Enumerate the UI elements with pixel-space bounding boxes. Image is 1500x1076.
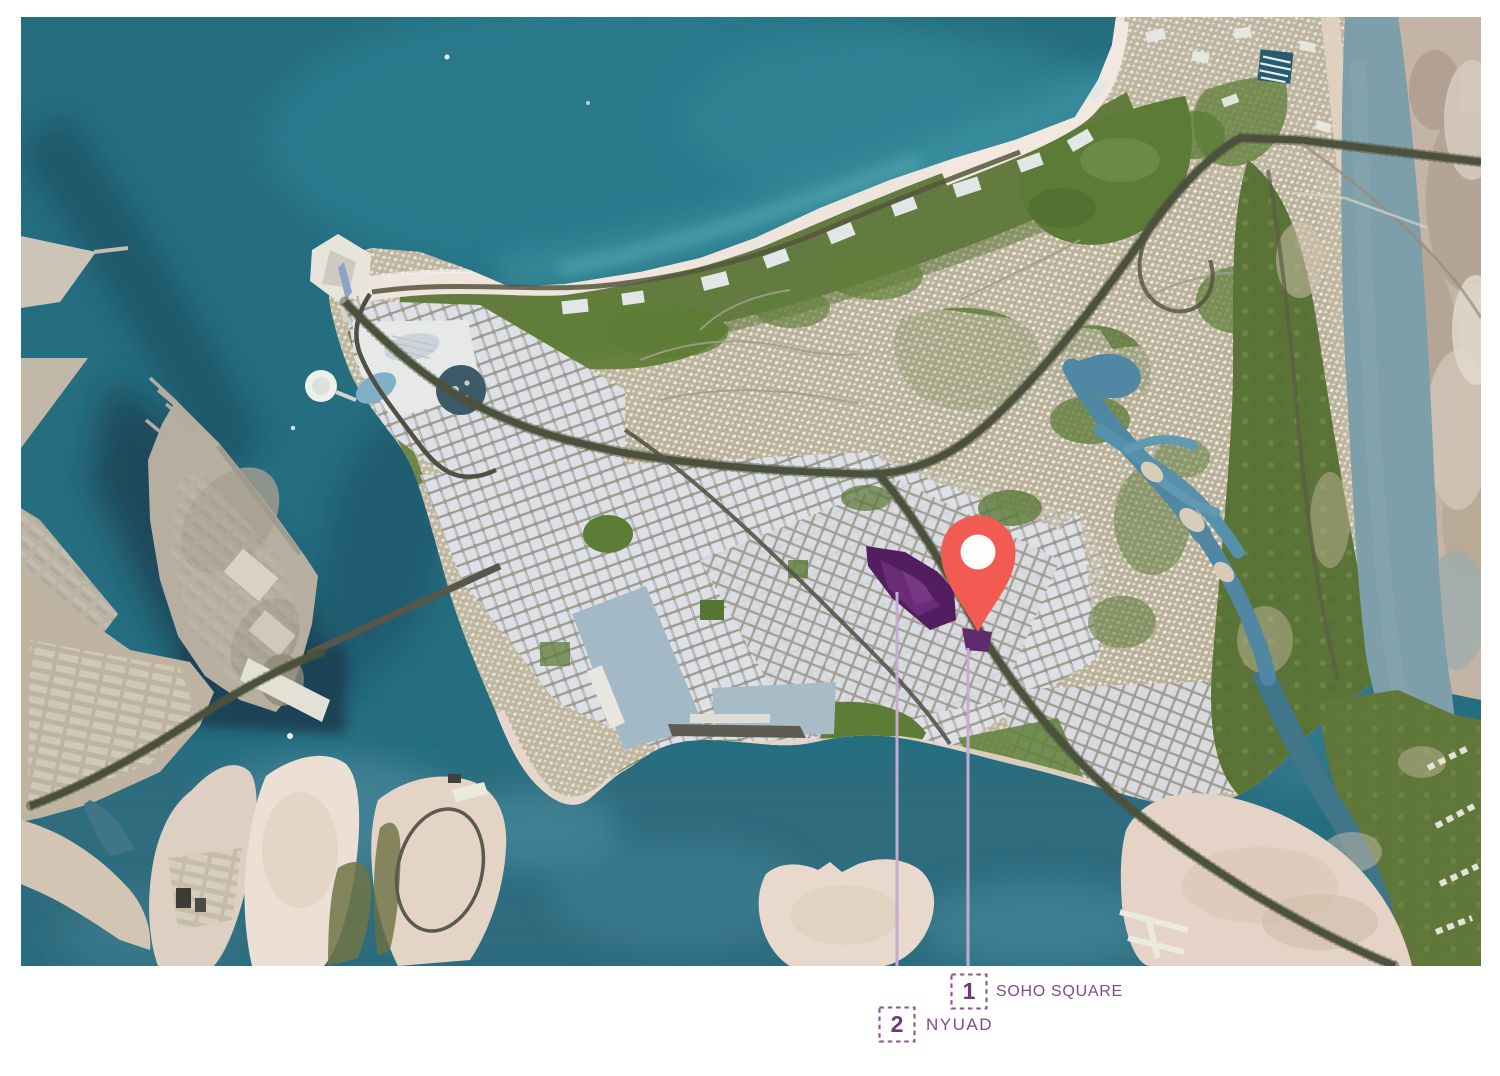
svg-text:SOHO SQUARE: SOHO SQUARE (996, 983, 1123, 1000)
svg-text:1: 1 (963, 978, 976, 1004)
svg-text:NYUAD: NYUAD (926, 1015, 993, 1034)
svg-text:2: 2 (891, 1011, 904, 1037)
